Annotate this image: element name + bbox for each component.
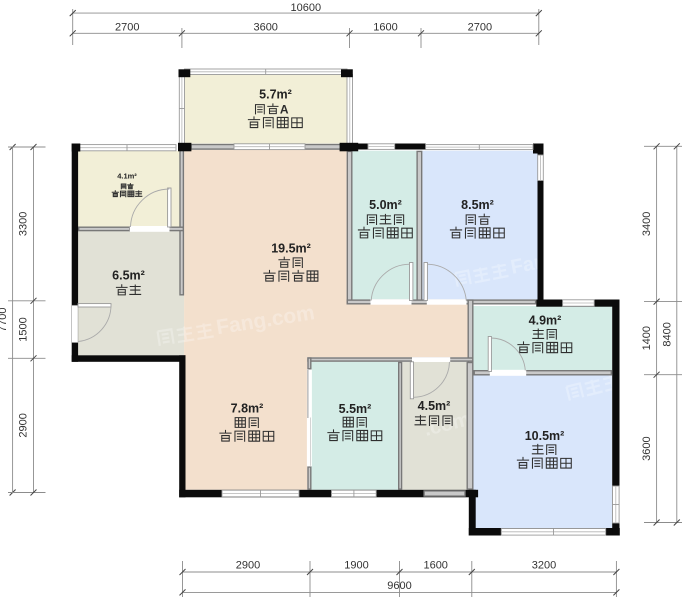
svg-text:2900: 2900: [17, 413, 29, 437]
svg-text:10.5m²: 10.5m²: [525, 429, 565, 443]
svg-text:1500: 1500: [17, 317, 29, 341]
svg-text:1400: 1400: [641, 326, 653, 350]
svg-text:10600: 10600: [291, 2, 322, 14]
svg-text:3600: 3600: [253, 22, 277, 34]
svg-text:2700: 2700: [115, 22, 139, 34]
svg-text:5.0m²: 5.0m²: [369, 198, 402, 212]
svg-text:19.5m²: 19.5m²: [271, 242, 311, 256]
svg-text:3300: 3300: [17, 212, 29, 236]
svg-text:1600: 1600: [373, 22, 397, 34]
svg-text:2700: 2700: [468, 22, 492, 34]
svg-text:6.5m²: 6.5m²: [112, 269, 145, 283]
svg-text:1900: 1900: [344, 560, 368, 572]
svg-text:5.5m²: 5.5m²: [339, 402, 372, 416]
svg-text:7.8m²: 7.8m²: [231, 402, 264, 416]
svg-text:3200: 3200: [532, 560, 556, 572]
svg-text:7700: 7700: [0, 308, 9, 332]
svg-text:8400: 8400: [661, 322, 673, 346]
svg-text:8.5m²: 8.5m²: [461, 198, 494, 212]
svg-text:4.9m²: 4.9m²: [529, 314, 562, 328]
svg-text:9600: 9600: [387, 580, 411, 592]
svg-text:5.7m²: 5.7m²: [259, 88, 292, 102]
svg-text:3600: 3600: [641, 436, 653, 460]
svg-text:A: A: [280, 102, 289, 116]
svg-text:4.1m²: 4.1m²: [117, 172, 137, 181]
svg-text:4.5m²: 4.5m²: [418, 399, 451, 413]
svg-text:2900: 2900: [236, 560, 260, 572]
svg-text:1600: 1600: [423, 560, 447, 572]
svg-text:3400: 3400: [641, 212, 653, 236]
